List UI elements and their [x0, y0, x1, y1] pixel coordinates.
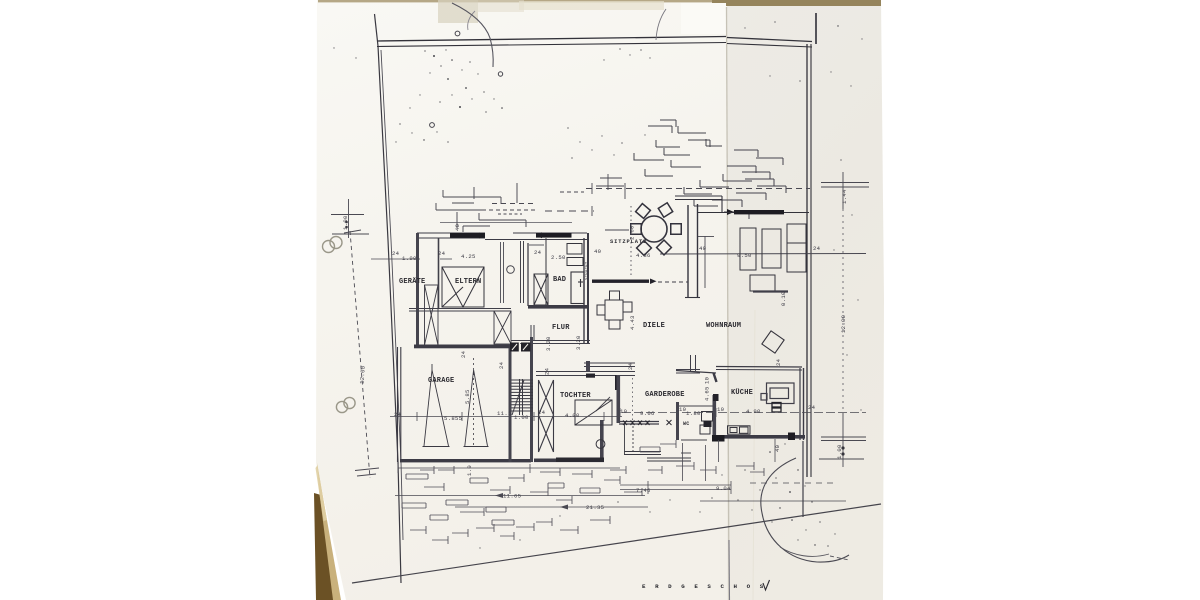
svg-text:21.35: 21.35: [586, 504, 604, 511]
svg-text:11.5: 11.5: [497, 410, 512, 417]
svg-text:7.46: 7.46: [636, 487, 651, 494]
svg-text:24: 24: [538, 409, 546, 416]
svg-text:9.04: 9.04: [716, 485, 731, 492]
svg-text:12.00: 12.00: [359, 365, 367, 384]
svg-text:GARDEROBE: GARDEROBE: [645, 391, 685, 399]
svg-text:24: 24: [392, 250, 400, 257]
svg-text:9.50: 9.50: [737, 252, 752, 259]
svg-text:1.00: 1.00: [514, 414, 529, 421]
svg-text:5.855: 5.855: [444, 415, 462, 422]
svg-text:9.06: 9.06: [640, 410, 655, 417]
svg-text:GARAGE: GARAGE: [428, 377, 454, 385]
svg-text:DIELE: DIELE: [643, 322, 665, 330]
svg-text:FLUR: FLUR: [552, 324, 570, 332]
svg-text:40: 40: [594, 248, 602, 255]
svg-text:WOHNRAUM: WOHNRAUM: [706, 322, 741, 330]
svg-text:4.90: 4.90: [746, 408, 761, 415]
svg-text:10: 10: [704, 376, 711, 384]
svg-text:0.10: 0.10: [780, 291, 787, 306]
svg-text:TOCHTER: TOCHTER: [560, 392, 591, 400]
svg-text:4.43: 4.43: [629, 315, 636, 330]
svg-text:GERÄTE: GERÄTE: [399, 277, 425, 286]
svg-text:24: 24: [627, 362, 634, 370]
svg-text:24: 24: [460, 350, 467, 358]
svg-text:24: 24: [438, 250, 446, 257]
svg-text:24: 24: [498, 361, 505, 369]
svg-text:40: 40: [454, 223, 461, 231]
svg-text:1.44: 1.44: [841, 189, 848, 204]
svg-text:WC: WC: [683, 421, 689, 427]
svg-text:11.65: 11.65: [503, 493, 521, 500]
svg-text:1.00: 1.00: [342, 215, 349, 230]
svg-text:1.00: 1.00: [836, 444, 843, 459]
svg-text:24: 24: [394, 411, 402, 418]
svg-text:2.60: 2.60: [629, 225, 636, 240]
svg-text:24: 24: [808, 404, 816, 411]
svg-text:3.20: 3.20: [575, 335, 582, 350]
svg-text:4.25: 4.25: [461, 253, 476, 260]
svg-text:4.65: 4.65: [704, 386, 711, 401]
svg-text:1.90: 1.90: [402, 255, 417, 262]
svg-text:BAD: BAD: [553, 276, 566, 284]
svg-text:ELTERN: ELTERN: [455, 278, 481, 286]
svg-text:4.00: 4.00: [565, 412, 580, 419]
svg-text:40: 40: [699, 245, 707, 252]
svg-text:ERDGESCHOS: ERDGESCHOS: [642, 583, 773, 590]
svg-text:2.50: 2.50: [551, 254, 566, 261]
svg-text:5.85: 5.85: [464, 389, 471, 404]
svg-text:3.20: 3.20: [545, 336, 552, 351]
svg-text:24: 24: [534, 249, 542, 256]
svg-text:12.00: 12.00: [840, 314, 847, 333]
svg-text:10: 10: [717, 406, 725, 413]
svg-text:KÜCHE: KÜCHE: [731, 388, 753, 397]
svg-text:1.80: 1.80: [686, 410, 701, 417]
svg-text:24: 24: [544, 367, 551, 375]
svg-text:1.0: 1.0: [466, 465, 473, 476]
svg-text:SCHACHT: SCHACHT: [586, 261, 590, 280]
svg-text:24: 24: [813, 245, 821, 252]
svg-text:10: 10: [620, 408, 628, 415]
svg-text:4.86: 4.86: [636, 252, 651, 259]
svg-text:24: 24: [775, 358, 782, 366]
